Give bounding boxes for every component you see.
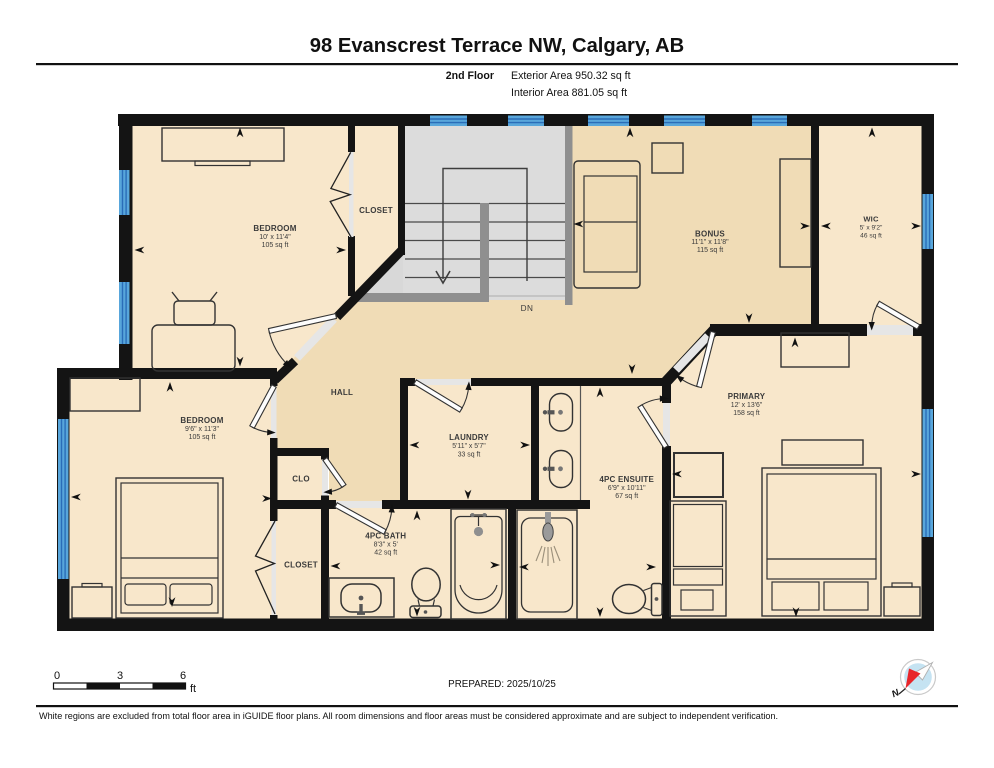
svg-text:ft: ft xyxy=(190,683,196,695)
svg-text:158 sq ft: 158 sq ft xyxy=(733,410,760,417)
svg-text:CLOSET: CLOSET xyxy=(359,206,393,215)
svg-text:WIC: WIC xyxy=(863,215,879,224)
svg-text:LAUNDRY: LAUNDRY xyxy=(449,433,489,442)
svg-text:6'9" x 10'11": 6'9" x 10'11" xyxy=(608,485,646,492)
svg-text:BEDROOM: BEDROOM xyxy=(253,224,296,233)
svg-text:BONUS: BONUS xyxy=(695,230,725,239)
svg-text:DN: DN xyxy=(521,304,534,313)
svg-text:115 sq ft: 115 sq ft xyxy=(697,247,723,254)
svg-text:3: 3 xyxy=(117,670,123,682)
svg-text:98 Evanscrest Terrace NW, Calg: 98 Evanscrest Terrace NW, Calgary, AB xyxy=(310,35,684,57)
svg-text:33 sq ft: 33 sq ft xyxy=(458,451,481,458)
svg-text:5' x 9'2": 5' x 9'2" xyxy=(860,225,883,232)
svg-text:4PC BATH: 4PC BATH xyxy=(365,532,406,541)
svg-text:105 sq ft: 105 sq ft xyxy=(189,434,216,441)
svg-text:67 sq ft: 67 sq ft xyxy=(615,493,638,500)
svg-text:4PC ENSUITE: 4PC ENSUITE xyxy=(599,475,654,484)
svg-text:105 sq ft: 105 sq ft xyxy=(262,242,289,249)
svg-text:HALL: HALL xyxy=(331,388,353,397)
svg-text:0: 0 xyxy=(54,670,60,682)
svg-text:PRIMARY: PRIMARY xyxy=(728,392,766,401)
svg-text:10' x 11'4": 10' x 11'4" xyxy=(259,234,291,241)
svg-text:46 sq ft: 46 sq ft xyxy=(860,233,882,240)
svg-text:PREPARED: 2025/10/25: PREPARED: 2025/10/25 xyxy=(448,679,556,690)
svg-text:8'3" x 5': 8'3" x 5' xyxy=(374,542,398,549)
svg-text:6: 6 xyxy=(180,670,186,682)
svg-text:42 sq ft: 42 sq ft xyxy=(374,550,397,557)
svg-text:White regions are excluded fro: White regions are excluded from total fl… xyxy=(39,711,778,721)
svg-text:CLOSET: CLOSET xyxy=(284,561,318,570)
svg-text:5'11" x 5'7": 5'11" x 5'7" xyxy=(452,443,486,450)
svg-text:CLO: CLO xyxy=(292,475,310,484)
svg-text:11'1" x 11'8": 11'1" x 11'8" xyxy=(691,239,729,246)
svg-text:12' x 13'6": 12' x 13'6" xyxy=(731,402,763,409)
svg-text:Exterior Area 950.32 sq ft: Exterior Area 950.32 sq ft xyxy=(511,70,631,82)
svg-text:Interior Area 881.05 sq ft: Interior Area 881.05 sq ft xyxy=(511,87,627,99)
svg-text:2nd Floor: 2nd Floor xyxy=(446,70,494,82)
svg-text:BEDROOM: BEDROOM xyxy=(180,416,223,425)
svg-text:9'6" x 11'3": 9'6" x 11'3" xyxy=(185,426,219,433)
